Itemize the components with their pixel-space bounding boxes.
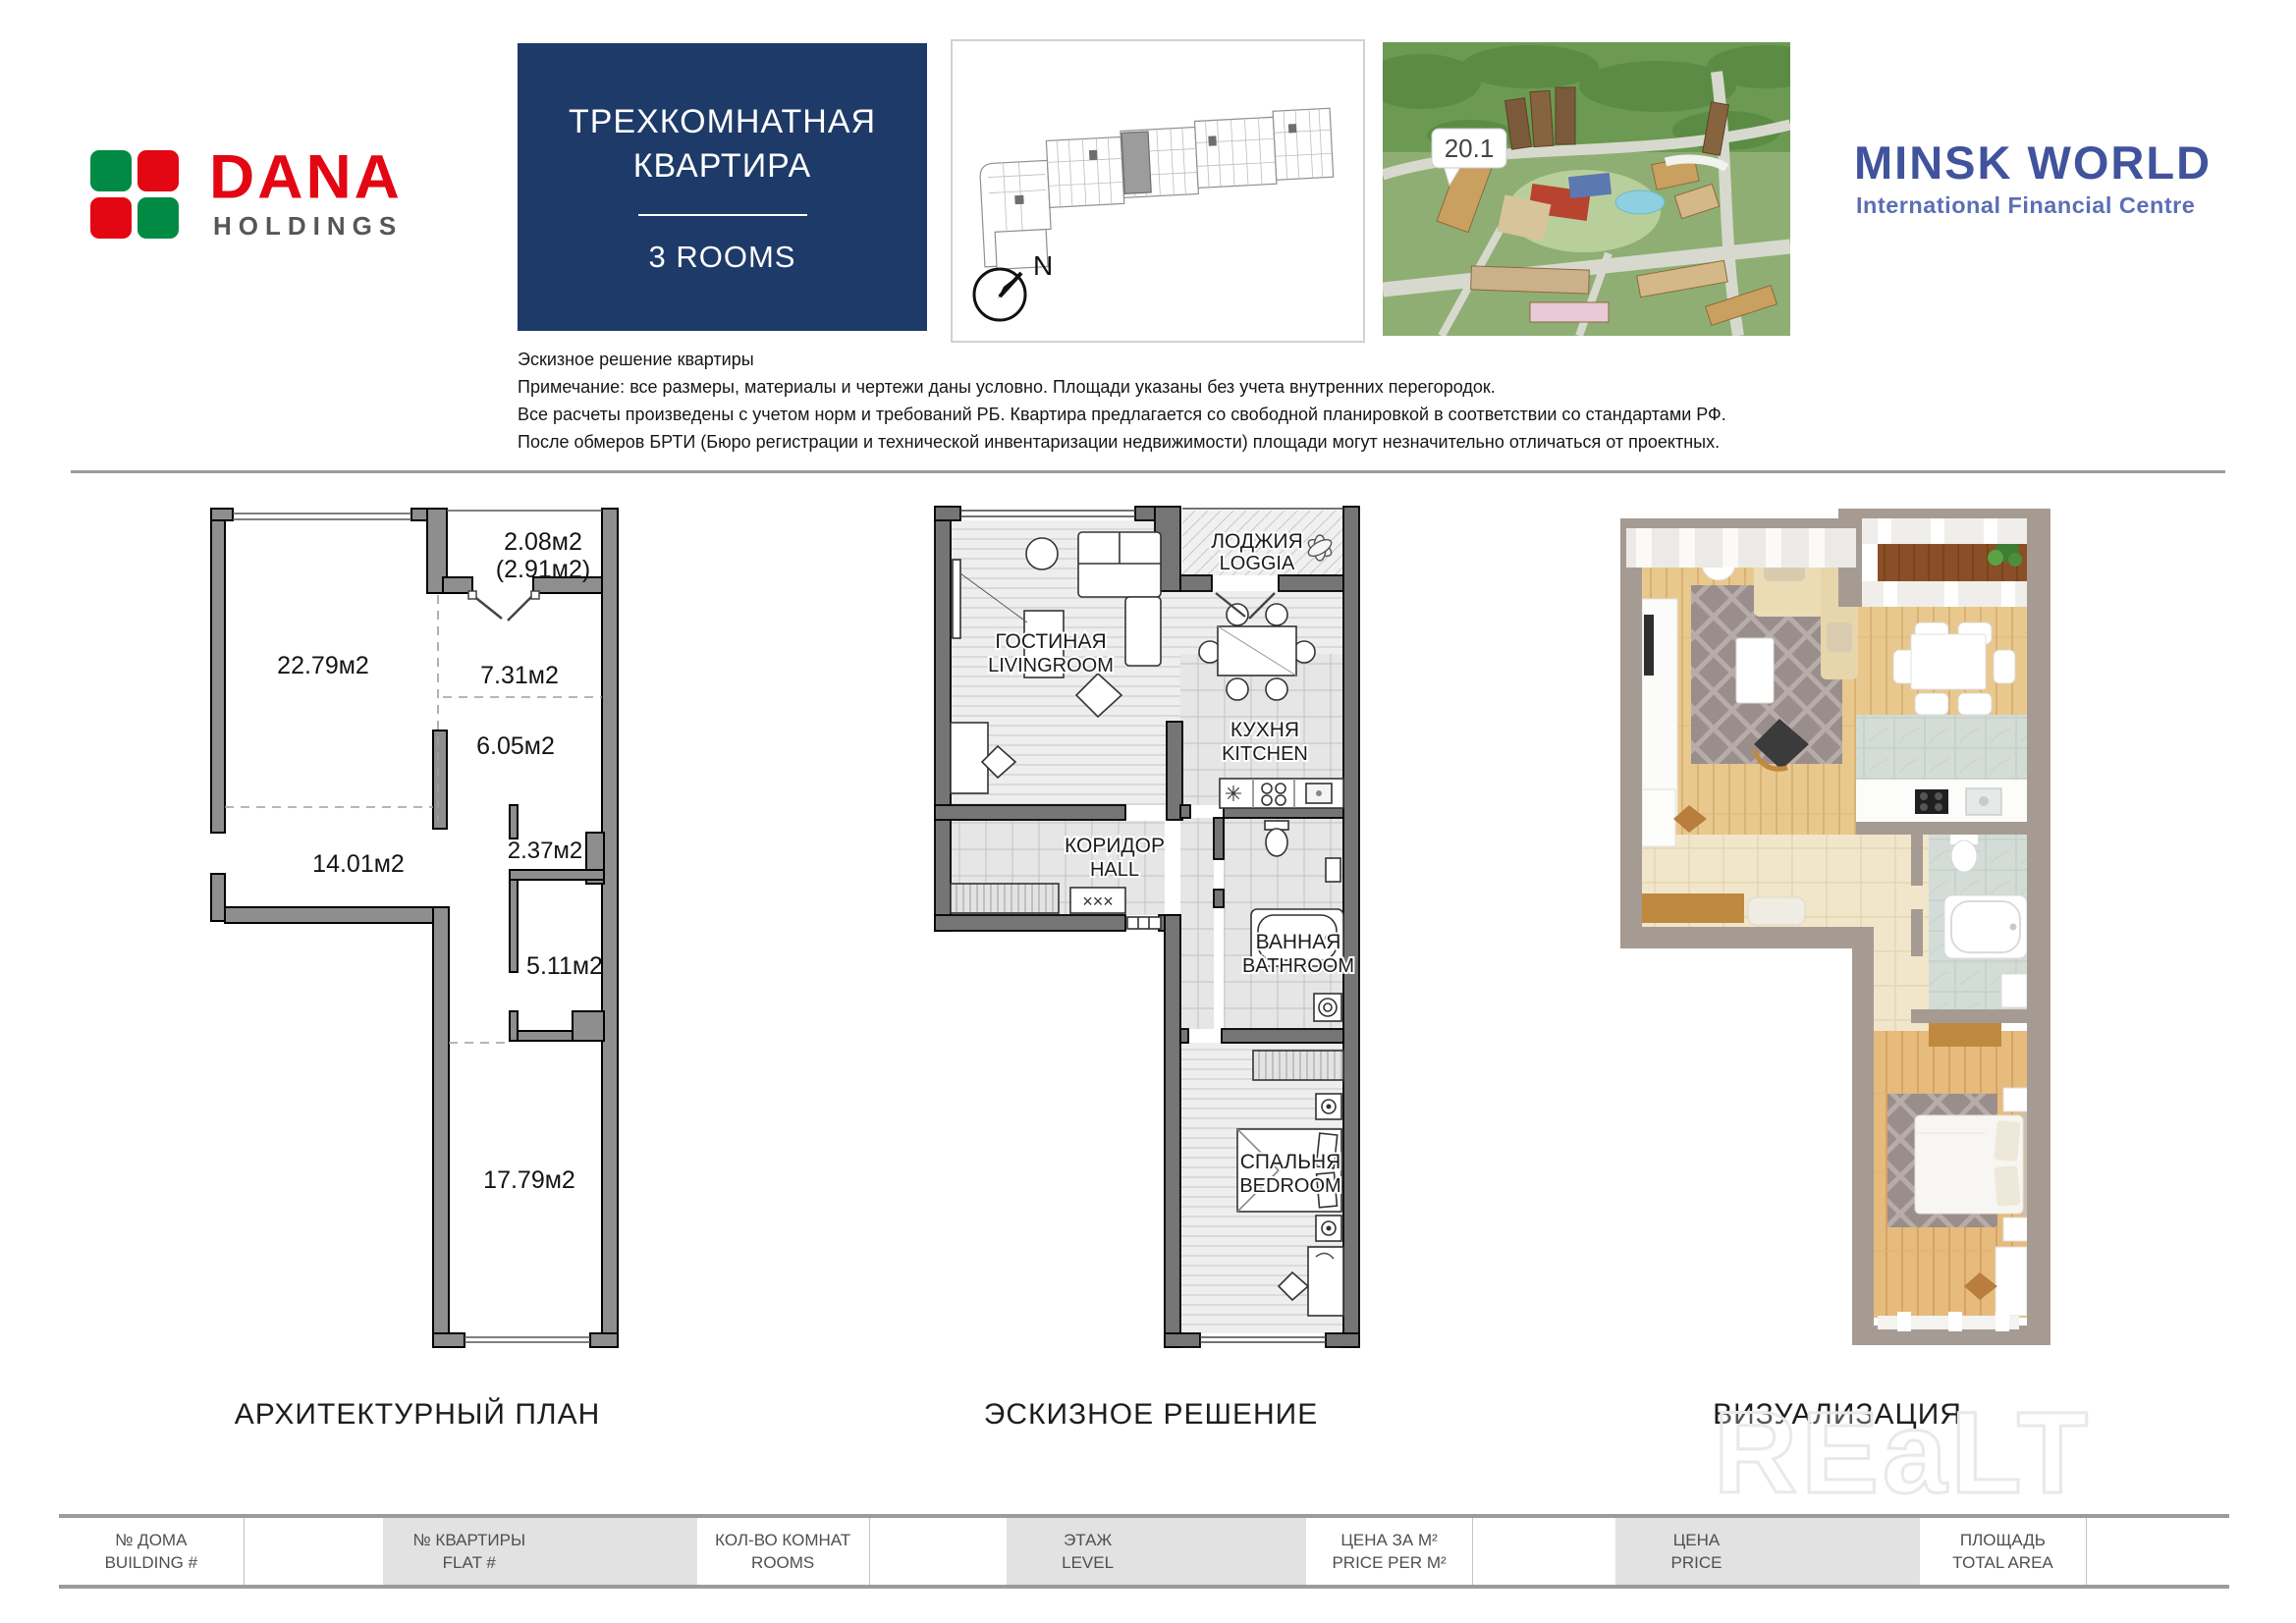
footer-label-ru: ЭТАЖ <box>1064 1529 1112 1551</box>
footer-label-total-area: ПЛОЩАДЬ TOTAL AREA <box>1920 1518 2088 1585</box>
footer-label-rooms: КОЛ-ВО КОМНАТ ROOMS <box>697 1518 870 1585</box>
dana-square-red-tr <box>137 150 179 191</box>
svg-text:×××: ××× <box>1082 892 1114 911</box>
footer-value-building <box>245 1518 384 1585</box>
label-loggia-ru: ЛОДЖИЯ <box>1211 530 1303 553</box>
dana-square-red-bl <box>90 197 132 239</box>
marker-label: 20.1 <box>1445 134 1495 163</box>
bathtub <box>1944 895 2027 958</box>
title-ru-line1: ТРЕХКОМНАТНАЯ <box>569 100 876 144</box>
kitchen-counter: ✳ <box>1220 779 1343 808</box>
desk <box>1642 789 1675 846</box>
label-bathroom-en: BATHROOM <box>1242 955 1354 977</box>
footer-label-price: ЦЕНА PRICE <box>1615 1518 1777 1585</box>
caption-architectural-plan: АРХИТЕКТУРНЫЙ ПЛАН <box>152 1398 683 1432</box>
footer-label-ru: № КВАРТИРЫ <box>412 1529 525 1551</box>
aerial-render-svg: 20.1 <box>1383 42 1790 336</box>
note-line: Примечание: все размеры, материалы и чер… <box>518 373 1814 401</box>
label-living-ru: ГОСТИНАЯ <box>995 630 1106 653</box>
nightstand-bottom <box>1316 1216 1341 1241</box>
footer-label-en: PRICE PER M² <box>1332 1551 1446 1574</box>
label-loggia-en: LOGGIA <box>1220 553 1295 574</box>
visualization-plan-svg <box>1620 505 2050 1355</box>
footer-value-flat <box>555 1518 697 1585</box>
tv <box>1644 615 1654 676</box>
footer-label-en: ROOMS <box>751 1551 814 1574</box>
compass-north-label: N <box>1033 250 1053 281</box>
area-room2: 6.05м2 <box>476 732 555 760</box>
label-bedroom-ru: СПАЛЬНЯ <box>1240 1151 1341 1173</box>
bath-sink <box>2001 974 2027 1007</box>
sketch-plan-svg: ✳ ××× <box>933 505 1361 1353</box>
desk <box>951 723 988 793</box>
architectural-plan-svg: 2.08м2 (2.91м2) 22.79м2 7.31м2 6.05м2 2.… <box>209 505 622 1351</box>
bedroom-desk <box>1995 1247 2027 1316</box>
caption-sketch-plan: ЭСКИЗНОЕ РЕШЕНИЕ <box>886 1398 1416 1432</box>
note-line: Все расчеты произведены с учетом норм и … <box>518 401 1814 428</box>
hall-wardrobe <box>951 884 1059 913</box>
washing-machine <box>1314 994 1341 1021</box>
notes-block: Эскизное решение квартиры Примечание: вс… <box>518 346 1814 456</box>
area-room1: 7.31м2 <box>480 662 559 689</box>
footer-label-en: BUILDING # <box>105 1551 197 1574</box>
minsk-world-logo-text: MINSK WORLD <box>1854 135 2212 189</box>
bedroom-dresser <box>1929 1021 2001 1047</box>
coffee-table <box>1736 638 1774 703</box>
hall-bench <box>1642 893 1744 923</box>
dana-square-green-tl <box>90 150 132 191</box>
bath-sink <box>1326 858 1340 882</box>
dana-logo-text: DANA <box>209 141 403 213</box>
footer-value-rooms <box>870 1518 1008 1585</box>
windows <box>233 511 602 1342</box>
dana-logo-icon <box>90 150 179 239</box>
tv-panel <box>953 560 960 638</box>
dana-square-green-br <box>137 197 179 239</box>
area-balcony: 2.08м2 <box>504 528 582 556</box>
toilet <box>1950 835 1978 872</box>
footer-label-ru: ПЛОЩАДЬ <box>1960 1529 2046 1551</box>
footer-label-ru: № ДОМА <box>115 1529 187 1551</box>
nightstand-top <box>2003 1088 2029 1111</box>
label-hall-en: HALL <box>1090 859 1139 881</box>
area-living: 22.79м2 <box>277 652 369 679</box>
realt-watermark: REaLT <box>1714 1386 2092 1520</box>
label-bedroom-en: BEDROOM <box>1239 1175 1340 1197</box>
footer-value-price-per-m2 <box>1473 1518 1615 1585</box>
doormat: ××× <box>1070 888 1125 913</box>
cooktop <box>1915 789 1948 814</box>
footer-label-ru: КОЛ-ВО КОМНАТ <box>715 1529 850 1551</box>
area-bedroom: 17.79м2 <box>483 1166 575 1194</box>
highlighted-unit <box>1121 132 1151 193</box>
footer-label-en: LEVEL <box>1062 1551 1114 1574</box>
note-line: После обмеров БРТИ (Бюро регистрации и т… <box>518 428 1814 456</box>
flyer-page: DANA HOLDINGS ТРЕХКОМНАТНАЯ КВАРТИРА 3 R… <box>0 0 2296 1623</box>
footer-value-price <box>1777 1518 1920 1585</box>
toilet <box>1265 821 1288 856</box>
svg-text:✳: ✳ <box>1225 782 1242 806</box>
hall-pouf <box>1748 897 1805 925</box>
building-floor-overview: N <box>951 39 1365 343</box>
building-outline <box>978 108 1338 270</box>
title-en: 3 ROOMS <box>649 240 796 275</box>
footer-label-ru: ЦЕНА <box>1673 1529 1721 1551</box>
area-balcony-total: (2.91м2) <box>496 556 590 583</box>
aerial-render: 20.1 <box>1383 42 1790 336</box>
nightstand-bottom <box>2003 1217 2029 1241</box>
label-hall-ru: КОРИДОР <box>1065 835 1165 857</box>
footer-label-flat: № КВАРТИРЫ FLAT # <box>383 1518 555 1585</box>
door-swings <box>468 591 539 621</box>
title-ru-line2: КВАРТИРА <box>633 144 811 189</box>
walls <box>211 509 618 1347</box>
footer-value-total-area <box>2087 1518 2229 1585</box>
footer-label-en: TOTAL AREA <box>1952 1551 2053 1574</box>
footer-label-en: PRICE <box>1671 1551 1722 1574</box>
side-table <box>1026 538 1058 569</box>
label-kitchen-en: KITCHEN <box>1222 743 1308 765</box>
label-living-en: LIVINGROOM <box>988 655 1114 676</box>
footer-label-ru: ЦЕНА ЗА М² <box>1340 1529 1437 1551</box>
dana-logo-subtext: HOLDINGS <box>213 211 403 242</box>
title-divider <box>638 214 807 216</box>
nightstand-top <box>1316 1094 1341 1119</box>
bed <box>1915 1111 2031 1216</box>
area-hall: 14.01м2 <box>312 850 405 878</box>
label-bathroom-ru: ВАННАЯ <box>1256 931 1341 953</box>
area-niche: 2.37м2 <box>508 838 583 864</box>
footer-value-level <box>1169 1518 1306 1585</box>
apartment-type-banner: ТРЕХКОМНАТНАЯ КВАРТИРА 3 ROOMS <box>518 43 927 331</box>
area-storage: 5.11м2 <box>526 952 603 980</box>
footer-label-price-per-m2: ЦЕНА ЗА М² PRICE PER M² <box>1306 1518 1474 1585</box>
footer-label-en: FLAT # <box>443 1551 496 1574</box>
minsk-world-logo-subtext: International Financial Centre <box>1856 192 2195 219</box>
building-outline-svg: N <box>953 41 1359 337</box>
pond <box>1615 190 1665 214</box>
note-line: Эскизное решение квартиры <box>518 346 1814 373</box>
header-divider-rule <box>71 470 2225 473</box>
bedroom-wardrobe <box>1253 1051 1343 1080</box>
entry-threshold <box>1127 917 1161 929</box>
compass-icon <box>974 269 1025 320</box>
label-kitchen-ru: КУХНЯ <box>1230 719 1299 741</box>
footer-label-building: № ДОМА BUILDING # <box>59 1518 245 1585</box>
footer-label-level: ЭТАЖ LEVEL <box>1007 1518 1169 1585</box>
footer-fields-bar: № ДОМА BUILDING # № КВАРТИРЫ FLAT # КОЛ-… <box>59 1514 2229 1589</box>
